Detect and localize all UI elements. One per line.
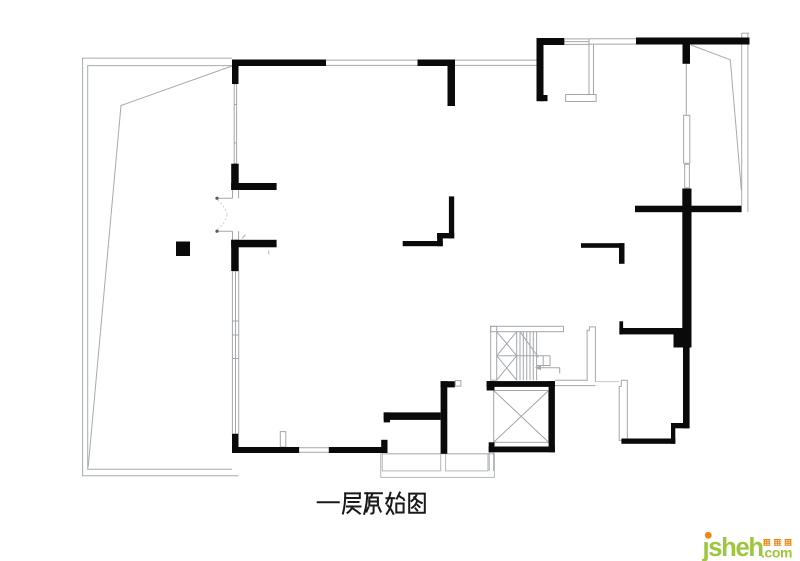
svg-text:.com: .com xyxy=(761,545,792,561)
